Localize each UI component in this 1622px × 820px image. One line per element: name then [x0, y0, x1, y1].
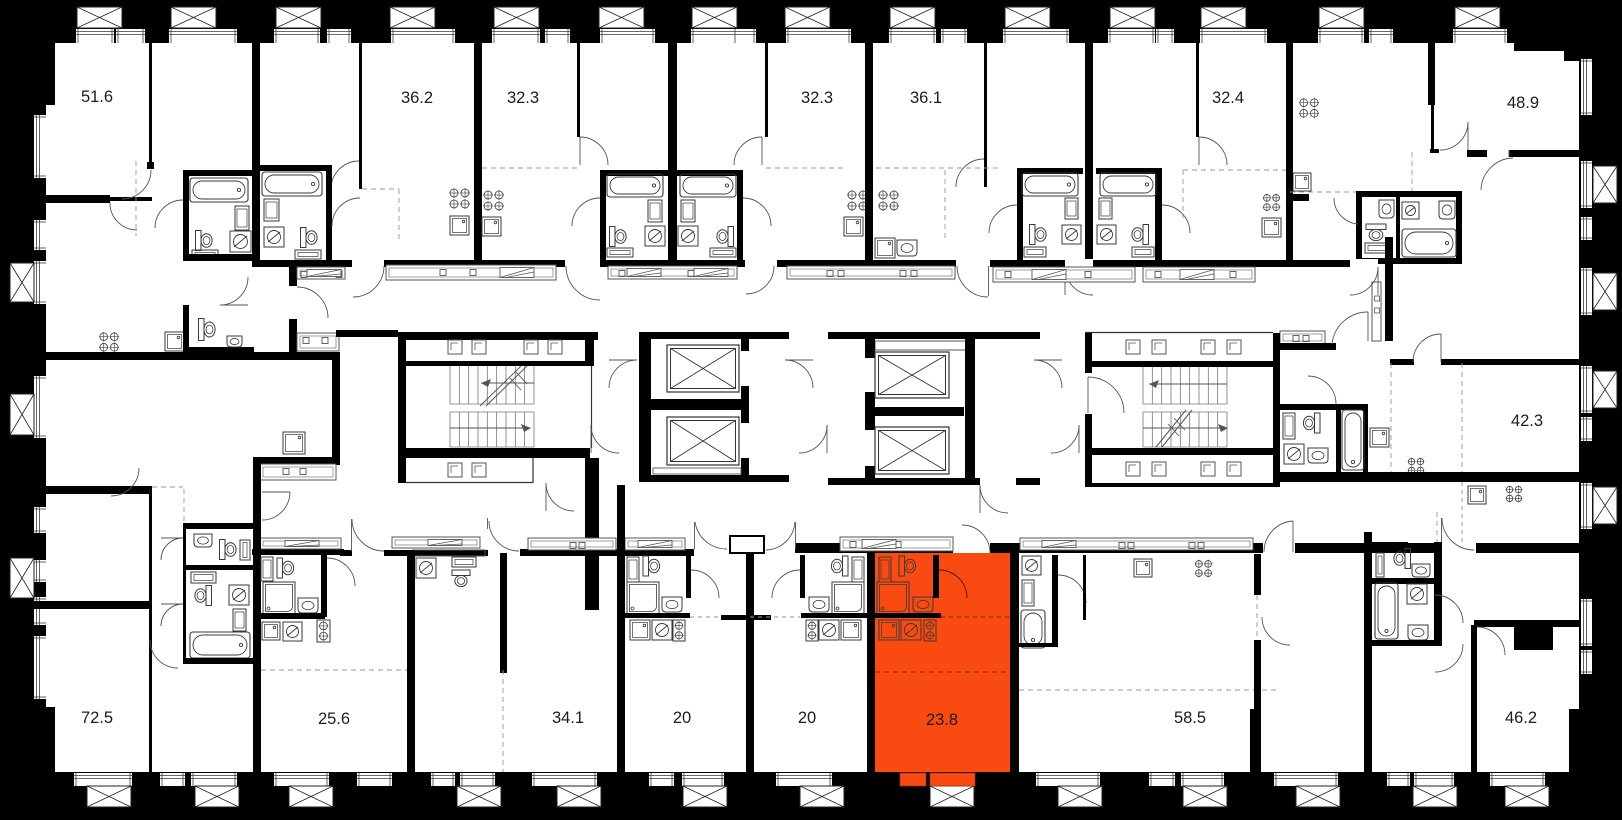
svg-text:36.1: 36.1 — [910, 89, 942, 107]
svg-text:34.1: 34.1 — [552, 709, 584, 727]
svg-text:72.5: 72.5 — [81, 709, 113, 727]
svg-text:32.3: 32.3 — [801, 89, 833, 107]
svg-text:48.9: 48.9 — [1507, 94, 1539, 112]
svg-text:23.8: 23.8 — [926, 711, 958, 729]
svg-text:25.6: 25.6 — [318, 710, 350, 728]
svg-text:42.3: 42.3 — [1511, 412, 1543, 430]
svg-text:32.4: 32.4 — [1212, 89, 1244, 107]
svg-text:20: 20 — [798, 709, 816, 727]
svg-text:58.5: 58.5 — [1174, 709, 1206, 727]
svg-text:46.2: 46.2 — [1505, 709, 1537, 727]
svg-text:32.3: 32.3 — [507, 89, 539, 107]
svg-text:51.6: 51.6 — [81, 88, 113, 106]
svg-text:20: 20 — [673, 709, 691, 727]
svg-text:36.2: 36.2 — [401, 89, 433, 107]
